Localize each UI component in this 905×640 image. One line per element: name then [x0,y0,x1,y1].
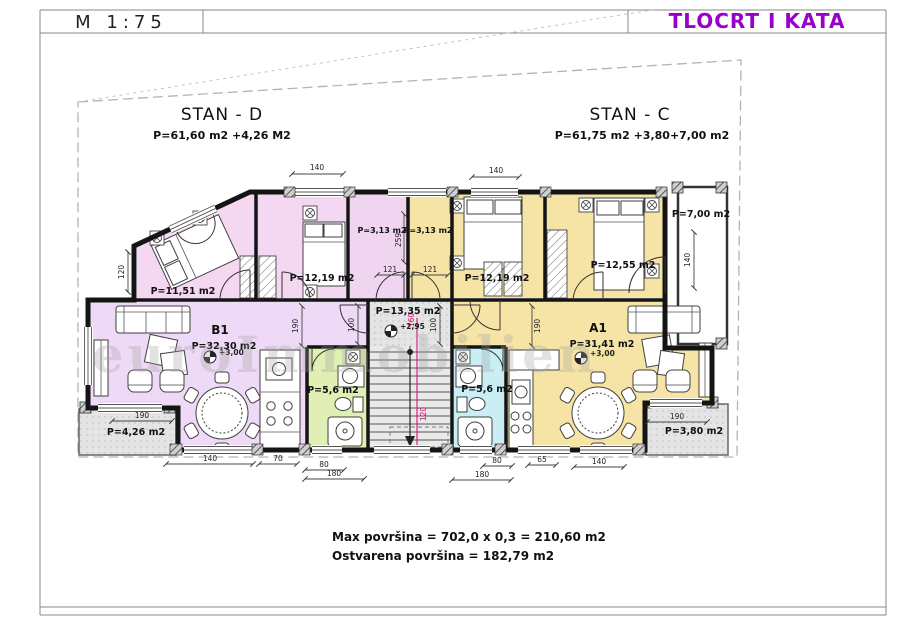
toilet-icon [335,398,351,411]
window [98,403,162,413]
label-bath-c: P=5,6 m2 [461,384,513,395]
dim-bottom: 65 [537,455,547,464]
toilet-tank-icon [353,397,363,412]
wardrobe-icon [547,230,567,298]
wall-pier [716,182,727,193]
label-bedroom-d1: P=11,51 m2 [151,286,216,297]
label-terrace: P=7,00 m2 [672,209,730,220]
page-title: TLOCRT I KATA [669,9,846,33]
dim-bottom: 80 [492,456,502,465]
shower-icon [458,417,492,446]
toilet-icon [469,398,485,411]
dim-bottom: 80 [319,460,329,469]
dim-left: 120 [117,265,126,280]
bed-c1-icon [464,197,522,269]
watermark: euroImmobilien [92,325,599,384]
stan-c-title: STAN - C [589,105,670,125]
wardrobe-icon [259,256,276,298]
summary-line2: Ostvarena površina = 182,79 m2 [332,549,554,563]
label-bedroom-c1: P=12,19 m2 [465,273,530,284]
armchair-icon [666,370,690,392]
stan-c-area: P=61,75 m2 +3,80+7,00 m2 [555,129,730,142]
window [460,445,492,455]
window [471,187,518,197]
dim-balcony-d: 190 [135,411,150,420]
dim-terrace: 140 [683,253,692,268]
dim-bottom: 180 [475,470,490,479]
dim-balcony-c: 190 [670,412,685,421]
dim-bottom: 70 [273,454,283,463]
dim-hall-d: 121 [383,265,398,274]
label-bedroom-c2: P=12,55 m2 [591,260,656,271]
label-hall-d: P=3,13 m2 [358,226,407,235]
bed-c2-icon [594,198,644,290]
dim-bottom: 140 [592,457,607,466]
floor-plan-sheet: M 1:75 TLOCRT I KATA [0,0,905,640]
toilet-tank-icon [457,397,467,412]
label-hall-c: P=3,13 m2 [404,226,453,235]
armchair-icon [633,370,657,392]
label-bath-d: P=5,6 m2 [307,385,359,396]
stan-d-title: STAN - D [181,105,263,125]
nightstand-icon [579,198,593,212]
room-hall-c [409,194,451,298]
window [518,445,570,455]
wall-pier [672,182,683,193]
nightstand-icon [303,206,317,220]
window [580,445,632,455]
dim-bottom: 140 [203,454,218,463]
label-stairwell: P=13,35 m2 [376,306,441,317]
dim-stair-run: 120 [419,407,428,422]
dim-top-c: 140 [489,166,504,175]
window [374,445,430,455]
dim-hall-c: 121 [423,265,438,274]
label-balcony-c: P=3,80 m2 [665,426,723,437]
dim-bottom: 180 [327,469,342,478]
label-balcony-d: P=4,26 m2 [107,427,165,438]
label-bedroom-d2: P=12,19 m2 [290,273,355,284]
scale-label: M 1:75 [75,12,167,33]
shower-icon [328,417,362,446]
window [388,187,446,197]
floor-plan-svg: M 1:75 TLOCRT I KATA [0,0,905,640]
wall-pier [716,338,727,349]
window [650,398,702,408]
nightstand-icon [645,198,659,212]
window [292,187,344,197]
window [312,445,342,455]
summary-line1: Max površina = 702,0 x 0,3 = 210,60 m2 [332,530,606,544]
window [184,445,252,455]
dim-top-d: 140 [310,163,325,172]
stan-d-area: P=61,60 m2 +4,26 M2 [153,129,291,142]
